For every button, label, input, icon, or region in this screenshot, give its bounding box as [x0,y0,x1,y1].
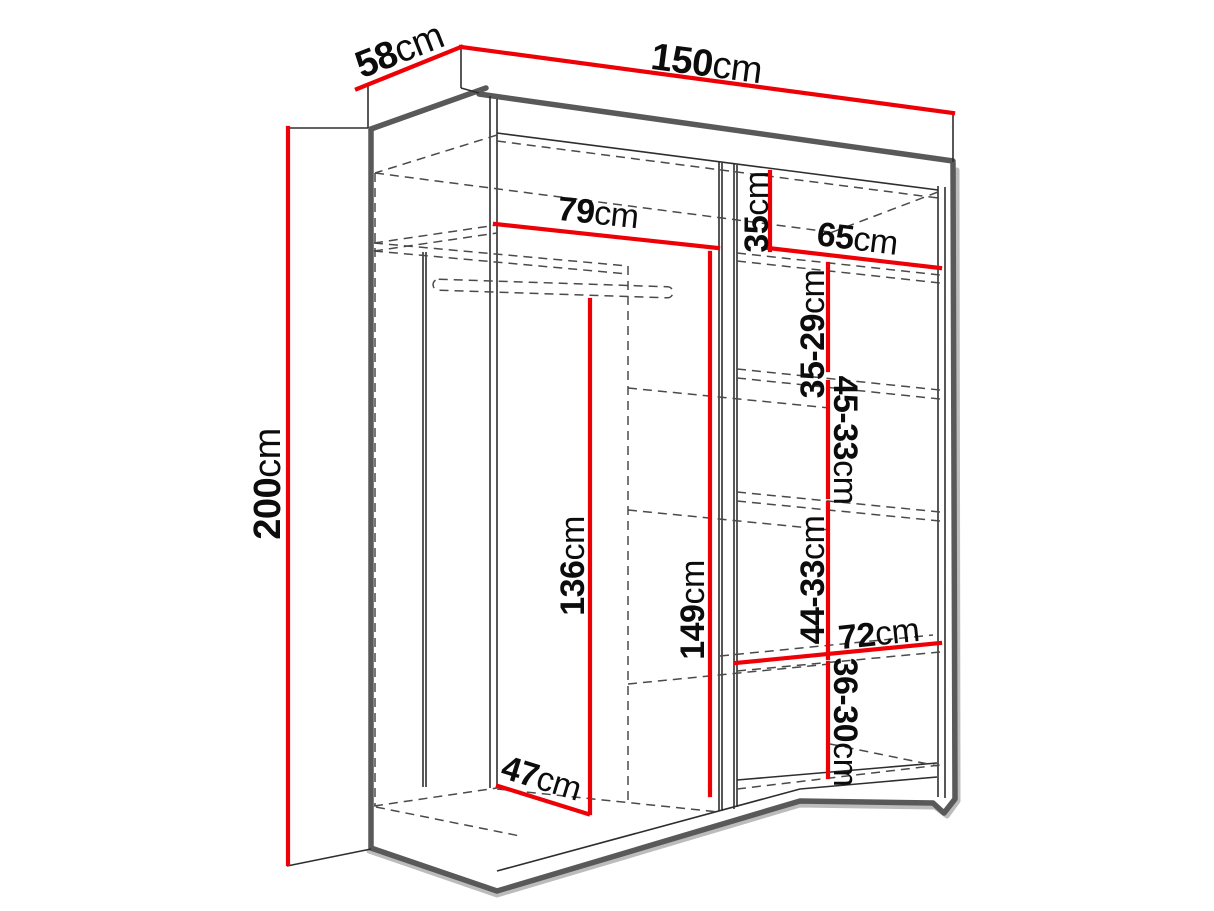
dimension-labels: 58cm 150cm 200cm 79cm 35cm 65cm 35-29cm … [247,15,921,809]
label-height-200: 200cm [247,428,289,540]
label-136: 136cm [554,516,592,616]
label-149: 149cm [674,560,712,660]
hanging-rail [433,279,673,298]
label-depth-58: 58cm [350,15,450,87]
label-width-150: 150cm [649,36,765,92]
wardrobe-dimension-diagram: 58cm 150cm 200cm 79cm 35cm 65cm 35-29cm … [0,0,1214,911]
outline-shadow [369,170,958,895]
label-72: 72cm [837,611,922,657]
label-79: 79cm [556,190,641,236]
label-44-33: 44-33cm [794,516,832,645]
wardrobe-diagram-canvas: 58cm 150cm 200cm 79cm 35cm 65cm 35-29cm … [0,0,1214,911]
label-35: 35cm [738,171,776,252]
label-36-30: 36-30cm [826,658,864,787]
carcass-outline [371,88,955,891]
label-45-33: 45-33cm [826,376,864,505]
